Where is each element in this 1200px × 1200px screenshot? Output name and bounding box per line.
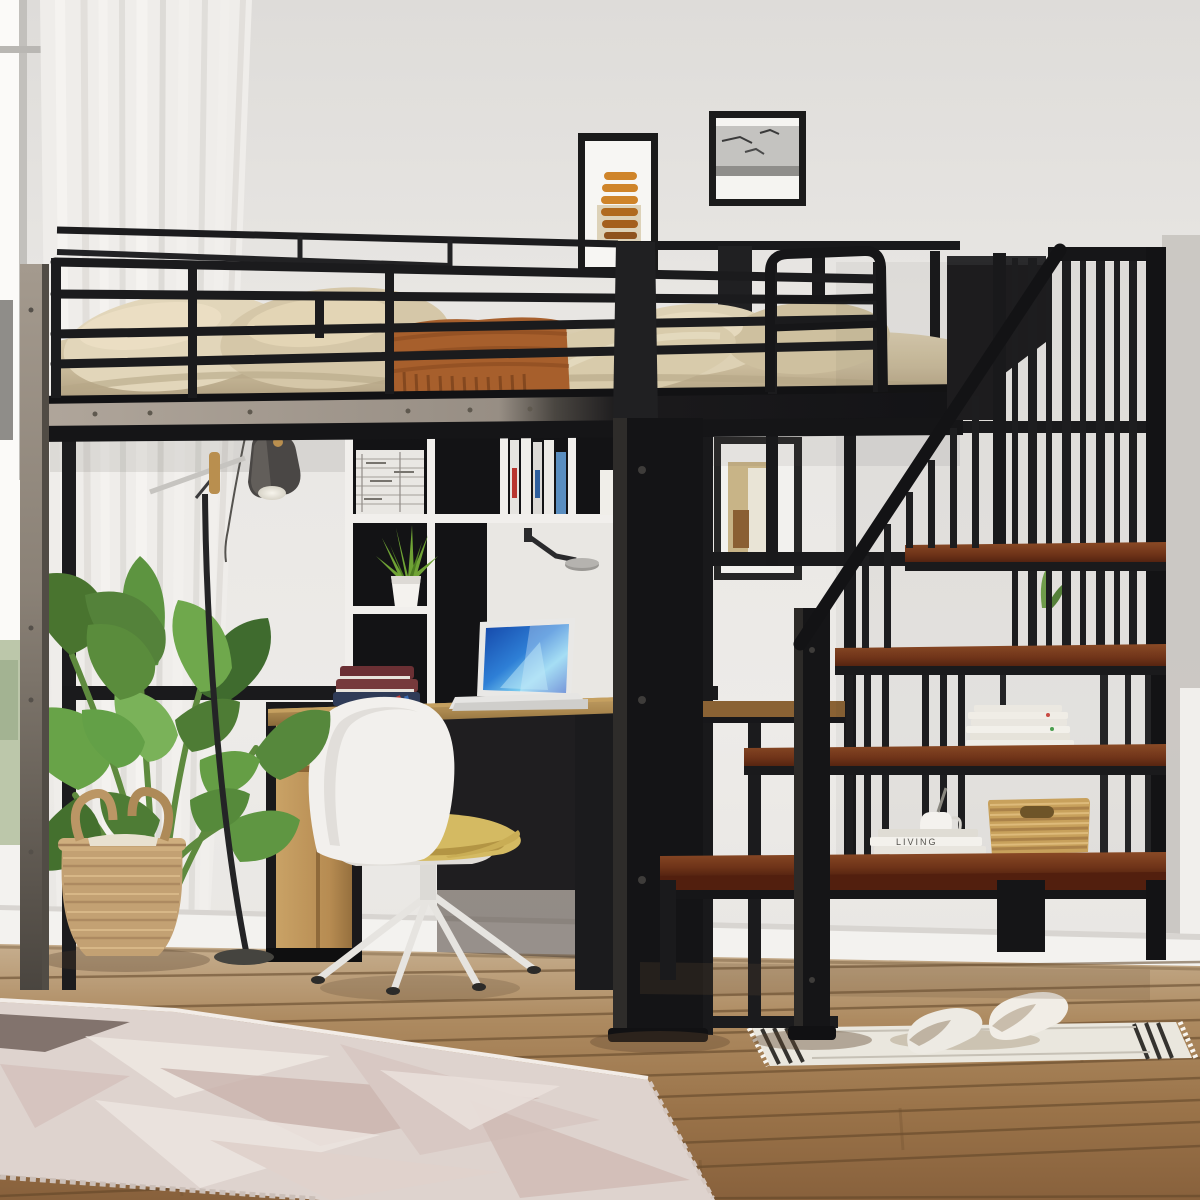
svg-text:LIVING: LIVING: [896, 837, 938, 847]
